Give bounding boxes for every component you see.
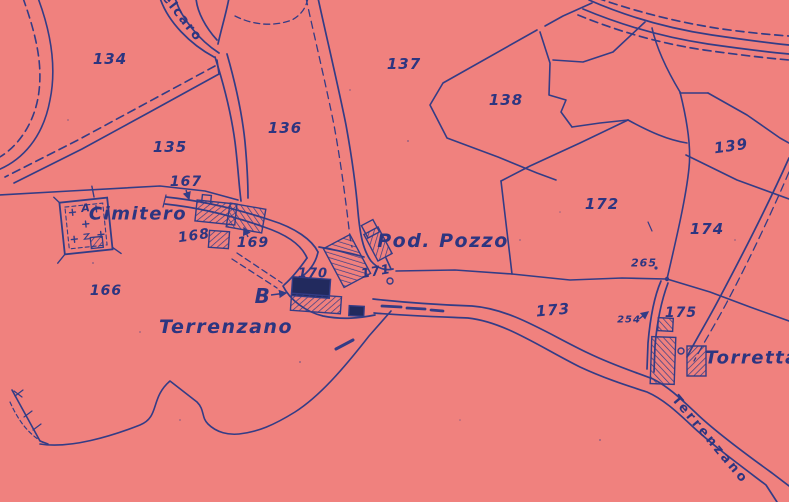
parcel-label-136: 136 bbox=[268, 119, 302, 137]
place-label-cimitero: Cimitero bbox=[89, 204, 187, 225]
place-label-torretta: Torretta bbox=[705, 348, 789, 369]
parcel-label-134: 134 bbox=[93, 50, 127, 68]
building-169 bbox=[226, 203, 266, 233]
cemetery-letter-a: A bbox=[81, 201, 92, 215]
marker-label-b: B bbox=[255, 284, 272, 308]
place-label-terrenzano: Terrenzano bbox=[159, 316, 293, 338]
parcel-label-172: 172 bbox=[585, 195, 619, 213]
parcel-label-138: 138 bbox=[489, 91, 523, 109]
buildings bbox=[195, 195, 706, 385]
parcel-label-173: 173 bbox=[535, 300, 571, 321]
parcel-label-175: 175 bbox=[665, 305, 697, 321]
parcel-label-170: 170 bbox=[298, 267, 328, 282]
building-168 bbox=[208, 230, 229, 248]
cadastral-map: 134 135 136 137 138 139 166 167 168 169 … bbox=[0, 0, 789, 502]
parcel-label-174: 174 bbox=[690, 220, 724, 238]
point-label-265: 265 bbox=[631, 257, 657, 270]
building-torretta-main bbox=[650, 337, 676, 385]
building-torretta-east bbox=[687, 346, 706, 376]
parcel-label-167: 167 bbox=[170, 174, 202, 190]
parcel-label-135: 135 bbox=[153, 138, 187, 156]
arrow-b bbox=[271, 293, 286, 295]
parcel-label-169: 169 bbox=[237, 235, 269, 251]
place-label-pod-pozzo: Pod. Pozzo bbox=[377, 230, 509, 252]
building-road-solid bbox=[349, 306, 365, 317]
well-icon bbox=[387, 278, 393, 284]
building-170-hatched bbox=[290, 293, 341, 313]
parcel-label-166: 166 bbox=[90, 283, 122, 299]
well-icon bbox=[678, 348, 684, 354]
parcel-label-137: 137 bbox=[387, 55, 421, 73]
point-label-254: 254 bbox=[617, 315, 641, 326]
arrow-167 bbox=[186, 190, 189, 199]
